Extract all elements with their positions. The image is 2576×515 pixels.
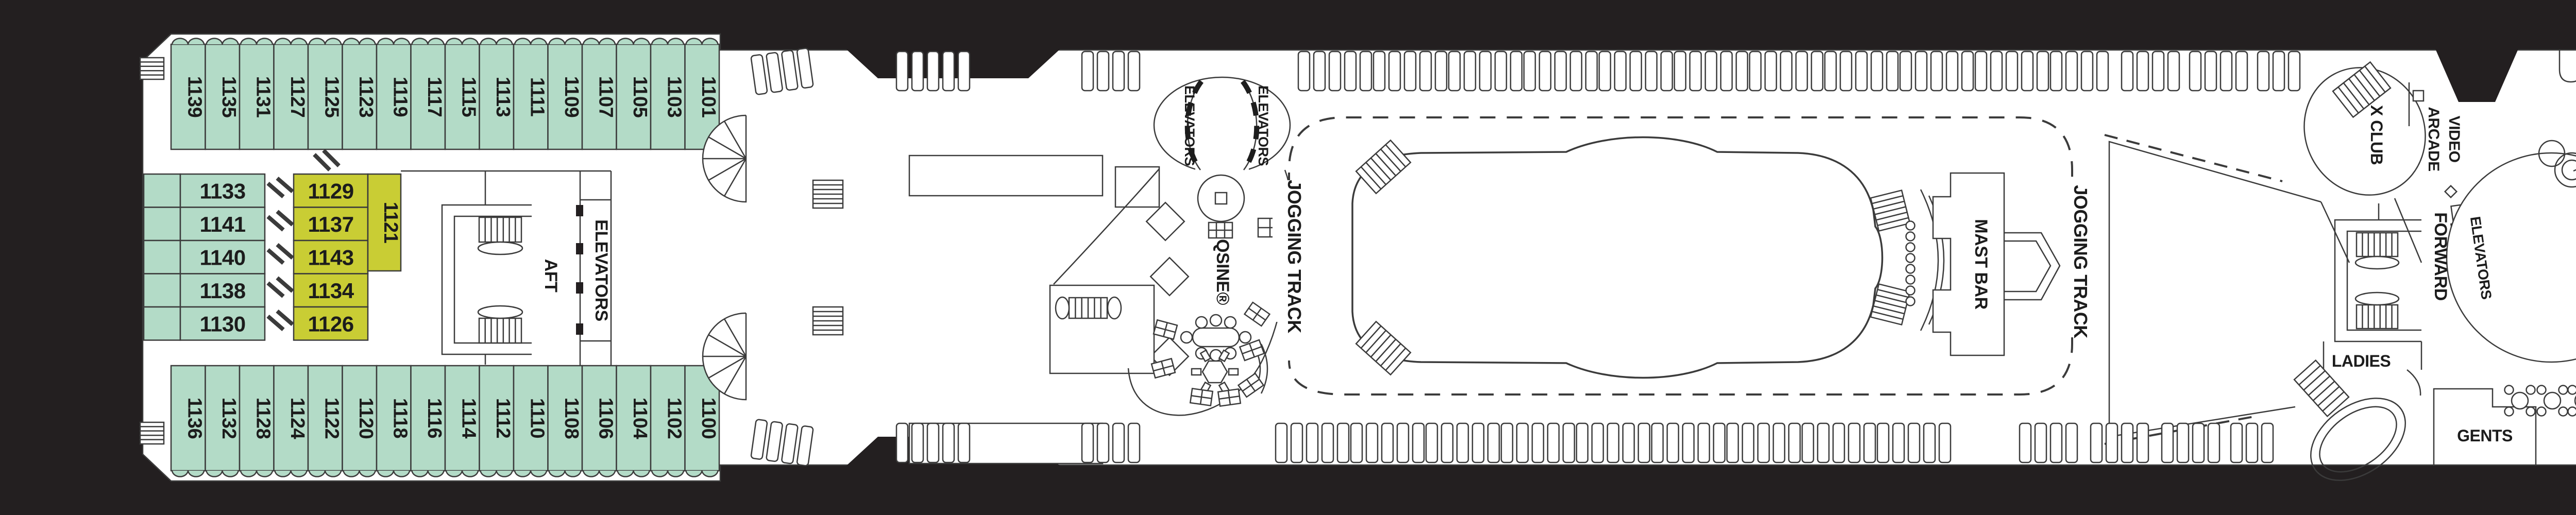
cabin-1117[interactable]: 1117 bbox=[411, 38, 446, 149]
svg-text:1137: 1137 bbox=[308, 212, 353, 236]
svg-text:1102: 1102 bbox=[663, 398, 685, 439]
balcony-1141 bbox=[144, 208, 180, 241]
svg-text:1116: 1116 bbox=[423, 398, 445, 438]
sun-loungers-group bbox=[1652, 423, 1725, 462]
svg-text:1113: 1113 bbox=[492, 77, 514, 117]
svg-text:1103: 1103 bbox=[663, 76, 685, 117]
svg-text:1101: 1101 bbox=[698, 76, 719, 118]
cabin-1113[interactable]: 1113 bbox=[480, 38, 514, 149]
svg-text:1134: 1134 bbox=[308, 279, 354, 303]
svg-text:1127: 1127 bbox=[286, 76, 308, 117]
cabin-1135[interactable]: 1135 bbox=[206, 38, 240, 149]
cabin-1111[interactable]: 1111 bbox=[514, 38, 548, 149]
sun-loungers-group bbox=[1298, 51, 1371, 91]
card-table bbox=[1218, 389, 1241, 406]
cabin-1126[interactable]: 1126 bbox=[294, 307, 368, 340]
svg-text:1119: 1119 bbox=[389, 77, 411, 117]
svg-text:1107: 1107 bbox=[595, 76, 616, 117]
cabin-1102[interactable]: 1102 bbox=[651, 366, 685, 477]
cabin-1130[interactable]: 1130 bbox=[180, 307, 265, 340]
balcony-1140 bbox=[144, 241, 180, 274]
svg-text:1140: 1140 bbox=[199, 245, 245, 269]
balcony-1133 bbox=[144, 174, 180, 208]
svg-text:1135: 1135 bbox=[218, 76, 240, 118]
label-qsine: QSINE® bbox=[1213, 239, 1232, 305]
sun-loungers-group bbox=[1674, 51, 1748, 91]
cabin-1116[interactable]: 1116 bbox=[411, 366, 446, 477]
sun-loungers-group bbox=[2258, 51, 2300, 91]
svg-text:1126: 1126 bbox=[308, 312, 353, 336]
sun-loungers-group bbox=[1750, 51, 1823, 91]
sun-loungers-group bbox=[1426, 423, 1499, 462]
svg-text:1128: 1128 bbox=[252, 398, 274, 439]
svg-text:1120: 1120 bbox=[355, 398, 377, 439]
cabin-1119[interactable]: 1119 bbox=[377, 38, 411, 149]
svg-text:1117: 1117 bbox=[423, 77, 445, 117]
sun-loungers-group bbox=[1599, 51, 1672, 91]
cabin-1143[interactable]: 1143 bbox=[294, 241, 368, 274]
label-aft-elevators: ELEVATORS bbox=[591, 219, 611, 321]
cabin-1125[interactable]: 1125 bbox=[308, 38, 343, 149]
cabin-1124[interactable]: 1124 bbox=[274, 366, 309, 477]
svg-text:1122: 1122 bbox=[320, 398, 342, 439]
svg-text:1123: 1123 bbox=[355, 76, 377, 117]
cabin-1136[interactable]: 1136 bbox=[171, 366, 206, 477]
cabin-1120[interactable]: 1120 bbox=[343, 366, 377, 477]
cabin-1109[interactable]: 1109 bbox=[548, 38, 583, 149]
sun-loungers-group bbox=[1449, 51, 1522, 91]
svg-text:1112: 1112 bbox=[492, 398, 514, 438]
svg-text:1141: 1141 bbox=[199, 212, 245, 236]
svg-text:1121: 1121 bbox=[380, 202, 401, 244]
svg-text:1100: 1100 bbox=[698, 398, 719, 439]
svg-text:1104: 1104 bbox=[629, 398, 651, 439]
sun-loungers-group bbox=[896, 423, 970, 462]
cabin-1103[interactable]: 1103 bbox=[651, 38, 685, 149]
sun-loungers-group bbox=[1802, 423, 1875, 462]
sun-loungers-group bbox=[1374, 51, 1447, 91]
svg-text:1118: 1118 bbox=[389, 398, 411, 438]
svg-text:1125: 1125 bbox=[320, 76, 342, 118]
label-aft: AFT bbox=[541, 259, 561, 293]
cabin-1137[interactable]: 1137 bbox=[294, 208, 368, 241]
cabin-1133[interactable]: 1133 bbox=[180, 174, 265, 208]
cabin-1104[interactable]: 1104 bbox=[617, 366, 651, 477]
cabin-1106[interactable]: 1106 bbox=[582, 366, 617, 477]
sun-loungers-group bbox=[1524, 51, 1597, 91]
label-video: VIDEO bbox=[2446, 116, 2463, 163]
cabin-1128[interactable]: 1128 bbox=[240, 366, 274, 477]
label-jogging-track-fwd: JOGGING TRACK bbox=[2070, 185, 2091, 338]
cabin-1105[interactable]: 1105 bbox=[617, 38, 651, 149]
svg-text:1133: 1133 bbox=[199, 179, 245, 203]
sun-loungers-group bbox=[2231, 423, 2273, 462]
svg-text:1109: 1109 bbox=[561, 76, 582, 117]
balcony-1138 bbox=[144, 274, 180, 307]
label-mid-elevators-right: ELEVATORS bbox=[1256, 85, 1271, 166]
cabin-1141[interactable]: 1141 bbox=[180, 208, 265, 241]
label-arcade: ARCADE bbox=[2425, 107, 2442, 171]
sun-loungers-group bbox=[1900, 51, 1973, 91]
svg-text:1108: 1108 bbox=[561, 398, 582, 439]
cabin-1121[interactable]: 1121 bbox=[368, 174, 401, 271]
svg-text:1139: 1139 bbox=[183, 76, 205, 117]
cabin-1118[interactable]: 1118 bbox=[377, 366, 411, 477]
balcony-1130 bbox=[144, 307, 180, 340]
label-jogging-track-aft: JOGGING TRACK bbox=[1284, 180, 1305, 333]
sun-loungers-group bbox=[1351, 423, 1424, 462]
svg-text:1110: 1110 bbox=[526, 398, 548, 438]
cabin-1110[interactable]: 1110 bbox=[514, 366, 548, 477]
svg-text:1111: 1111 bbox=[526, 77, 548, 117]
svg-text:1105: 1105 bbox=[629, 76, 651, 118]
sun-loungers-group bbox=[1577, 423, 1650, 462]
svg-text:1131: 1131 bbox=[252, 76, 274, 118]
cabin-1132[interactable]: 1132 bbox=[206, 366, 240, 477]
cabin-1129[interactable]: 1129 bbox=[294, 174, 368, 208]
svg-text:1132: 1132 bbox=[218, 398, 240, 439]
card-table bbox=[1190, 388, 1213, 405]
sun-loungers-group bbox=[1727, 423, 1800, 462]
svg-text:1124: 1124 bbox=[286, 398, 308, 439]
cabin-1131[interactable]: 1131 bbox=[240, 38, 274, 149]
cabin-1115[interactable]: 1115 bbox=[445, 38, 480, 149]
sun-loungers-group bbox=[896, 51, 970, 91]
cabin-1123[interactable]: 1123 bbox=[343, 38, 377, 149]
svg-text:1106: 1106 bbox=[595, 398, 616, 439]
cabin-1108[interactable]: 1108 bbox=[548, 366, 583, 477]
svg-text:1115: 1115 bbox=[457, 77, 479, 117]
label-x-club: X CLUB bbox=[2367, 105, 2386, 165]
cabin-1139[interactable]: 1139 bbox=[171, 38, 206, 149]
svg-text:1130: 1130 bbox=[199, 312, 245, 336]
cabin-1134[interactable]: 1134 bbox=[294, 274, 368, 307]
cabin-1140[interactable]: 1140 bbox=[180, 241, 265, 274]
cabin-1107[interactable]: 1107 bbox=[582, 38, 617, 149]
cabin-1127[interactable]: 1127 bbox=[274, 38, 309, 149]
label-forward: FORWARD bbox=[2431, 212, 2450, 301]
sun-loungers-group bbox=[1825, 51, 1898, 91]
label-mid-elevators-left: ELEVATORS bbox=[1182, 85, 1197, 166]
svg-text:1114: 1114 bbox=[457, 398, 479, 439]
sun-loungers-group bbox=[1276, 423, 1349, 462]
deck-plan: 1139113511311127112511231119111711151113… bbox=[0, 0, 2576, 515]
cabin-1112[interactable]: 1112 bbox=[480, 366, 514, 477]
svg-text:1143: 1143 bbox=[308, 245, 353, 269]
svg-text:1129: 1129 bbox=[308, 179, 353, 203]
sun-loungers-group bbox=[1501, 423, 1574, 462]
svg-text:1138: 1138 bbox=[199, 279, 245, 303]
label-gents: GENTS bbox=[2457, 426, 2513, 445]
sun-loungers-group bbox=[1975, 51, 2048, 91]
cabin-1138[interactable]: 1138 bbox=[180, 274, 265, 307]
cabin-1114[interactable]: 1114 bbox=[445, 366, 480, 477]
label-mast-bar: MAST BAR bbox=[1971, 219, 1991, 309]
label-ladies: LADIES bbox=[2332, 352, 2391, 370]
cabin-1122[interactable]: 1122 bbox=[308, 366, 343, 477]
svg-text:1136: 1136 bbox=[183, 398, 205, 439]
sun-loungers-group bbox=[1877, 423, 1951, 462]
